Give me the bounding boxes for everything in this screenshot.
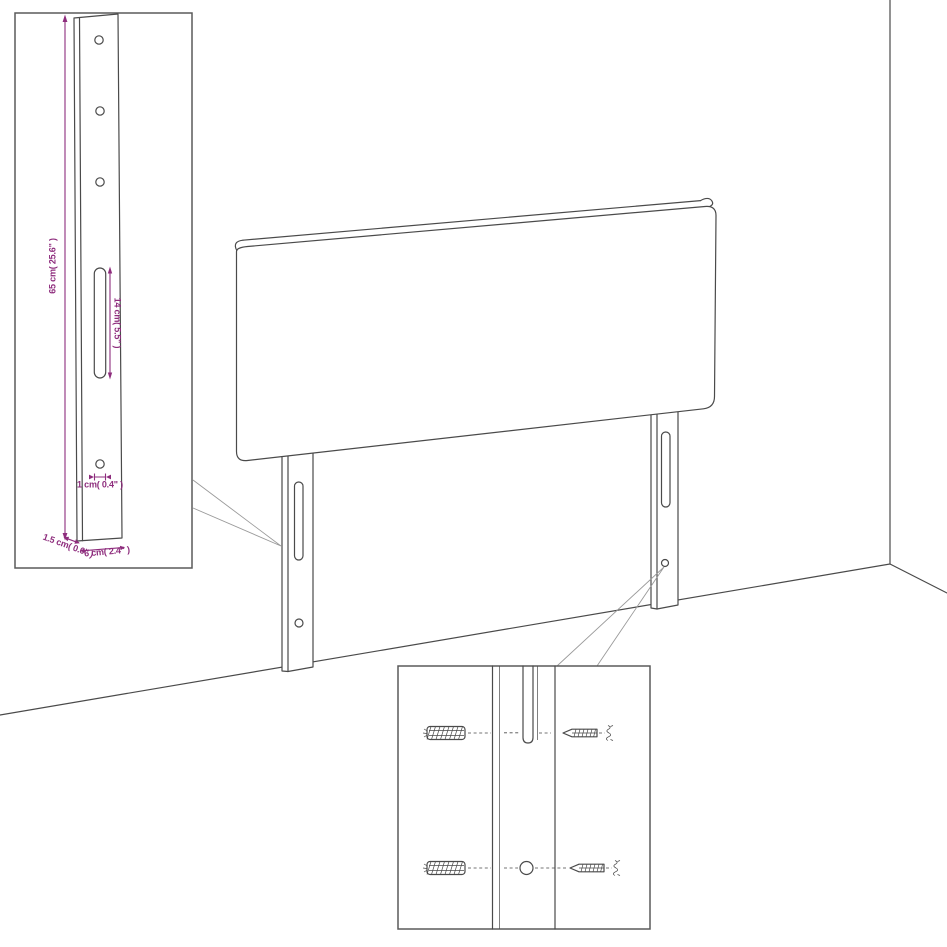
left-leg-hole (295, 619, 303, 627)
right-leg-slot (662, 432, 671, 507)
left-leg-slot (295, 482, 304, 560)
bracket-post (74, 14, 122, 541)
dim-label-hole: 1 cm( 0.4" ) (77, 481, 123, 490)
inset-mounting-detail (398, 666, 650, 929)
diagram-canvas (0, 0, 947, 947)
dim-label-height: 65 cm( 25.6" ) (49, 238, 58, 294)
right-leg (651, 396, 678, 609)
floor-edge-right (890, 564, 947, 593)
post-small-hole (96, 460, 104, 468)
post-hole-1 (95, 36, 103, 44)
dim-label-slot: 14 cm( 5.5" ) (113, 298, 122, 349)
callout-lines-right (557, 567, 664, 666)
post-hole-2 (96, 107, 104, 115)
headboard-panel (235, 198, 716, 460)
closeup-hole (520, 862, 533, 875)
left-leg (282, 438, 313, 672)
right-leg-hole (662, 560, 669, 567)
callout-lines-left (193, 480, 281, 546)
post-hole-3 (96, 178, 104, 186)
assembly-diagram: 65 cm( 25.6" ) 14 cm( 5.5" ) 1 cm( 0.4" … (0, 0, 947, 947)
post-slot (94, 268, 105, 378)
